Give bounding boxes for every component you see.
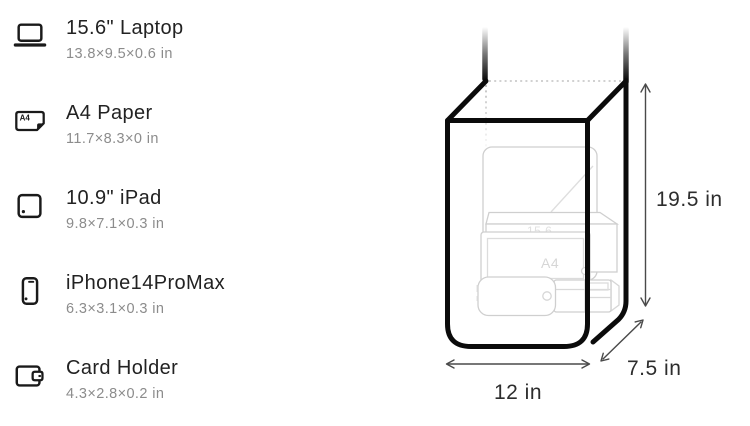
bag-top-right-edge bbox=[588, 81, 627, 121]
bag-capacity-infographic: 15.6" Laptop 13.8×9.5×0.6 in A4 A4 Paper… bbox=[0, 0, 750, 426]
bag-dimension-diagram: 15.6 A4 bbox=[0, 0, 750, 426]
width-label: 12 in bbox=[494, 381, 542, 404]
bag-top-left-edge bbox=[448, 81, 487, 121]
ghost-items: 15.6 A4 bbox=[477, 147, 619, 316]
height-label: 19.5 in bbox=[656, 188, 723, 211]
bag-hidden-edges bbox=[486, 81, 623, 153]
ghost-a4-label: A4 bbox=[541, 255, 559, 271]
depth-label: 7.5 in bbox=[627, 357, 681, 380]
ghost-iphone-shape bbox=[477, 277, 556, 316]
